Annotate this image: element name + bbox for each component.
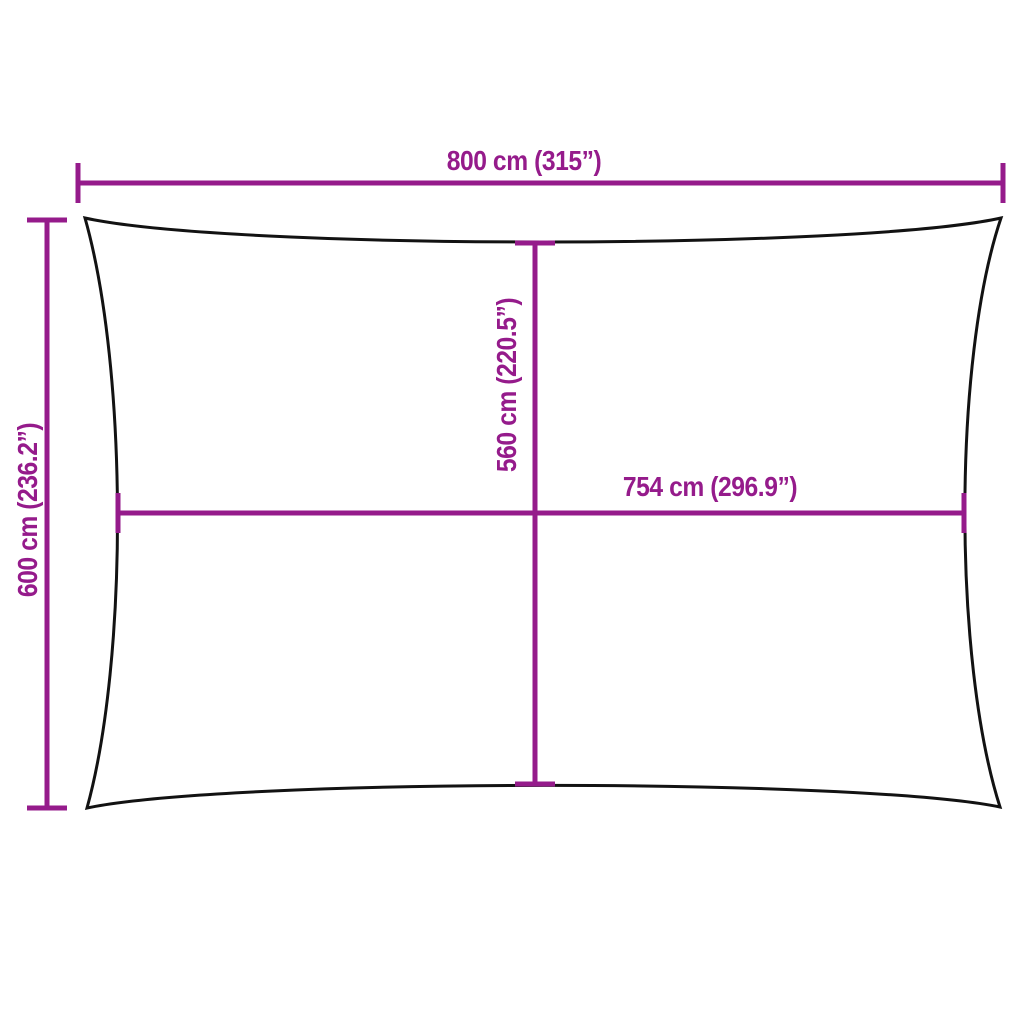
dimension-label-top-width: 800 cm (315”): [447, 145, 602, 177]
dimension-label-center-height: 560 cm (220.5”): [491, 298, 523, 472]
dimension-label-left-height: 600 cm (236.2”): [12, 423, 44, 597]
dimension-label-center-width: 754 cm (296.9”): [623, 471, 797, 503]
dimension-diagram: 800 cm (315”) 600 cm (236.2”) 560 cm (22…: [0, 0, 1024, 1024]
dimension-line-center-width: [118, 493, 964, 533]
